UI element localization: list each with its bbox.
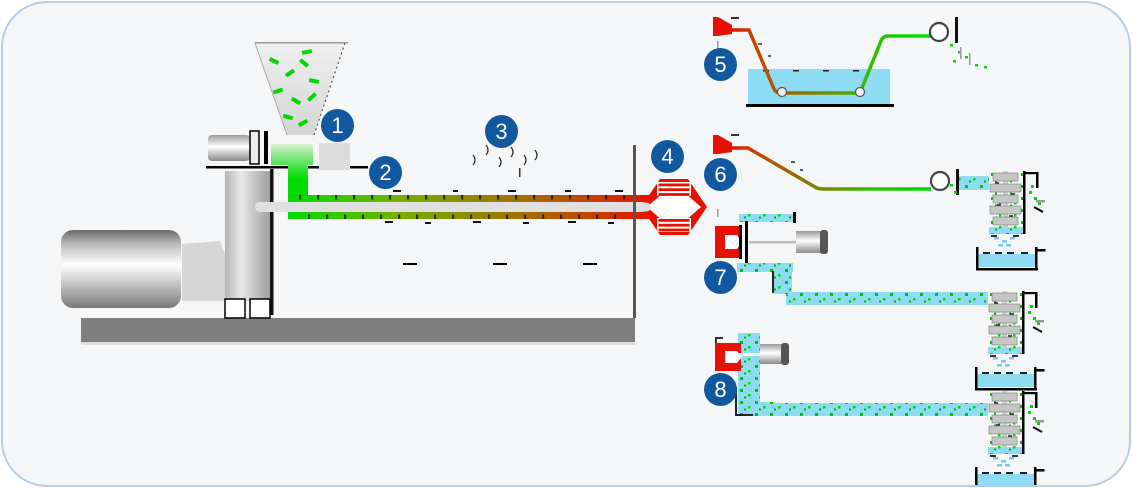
screw-barrel xyxy=(255,190,651,224)
die-face-cutter xyxy=(715,221,828,263)
machine-leg xyxy=(250,299,270,318)
step-number: 6 xyxy=(714,164,726,186)
step-number: 4 xyxy=(661,146,673,168)
extrusion-diagram xyxy=(3,3,1131,487)
step-number: 2 xyxy=(379,162,391,184)
step-badge-4: 4 xyxy=(651,140,684,173)
step-badge-3: 3 xyxy=(485,115,518,148)
die-head xyxy=(613,179,707,235)
breaker-plate xyxy=(659,184,690,187)
cutter-blade xyxy=(955,17,958,43)
cutter-hub xyxy=(760,344,784,364)
machine-base xyxy=(81,318,635,342)
guide-roller xyxy=(856,88,865,97)
screw-tip xyxy=(613,203,651,212)
step-number: 1 xyxy=(331,115,343,137)
extruder-machine xyxy=(61,42,707,345)
step-badge-8: 8 xyxy=(704,373,737,406)
cutter-hub xyxy=(796,231,822,253)
step-number: 8 xyxy=(714,379,726,401)
cut-pellets xyxy=(950,44,987,69)
extruder-screw xyxy=(255,202,647,212)
step-number: 3 xyxy=(495,121,507,143)
die-support xyxy=(633,145,636,318)
extruded-strand xyxy=(732,148,931,189)
feed-block xyxy=(319,143,350,170)
drive-motor xyxy=(61,230,181,308)
diagram-panel: 1 2 3 4 5 6 7 8 xyxy=(1,1,1131,487)
cutter-shaft xyxy=(749,241,796,244)
process-water-bath-strand xyxy=(713,17,987,107)
cutter-shaft xyxy=(738,353,760,356)
step-badge-5: 5 xyxy=(704,48,737,81)
thrust-bearing xyxy=(208,135,250,161)
guide-roller xyxy=(778,88,787,97)
strand-die xyxy=(713,135,718,154)
step-badge-6: 6 xyxy=(704,158,737,191)
step-badge-2: 2 xyxy=(369,156,402,189)
diagram-canvas: 1 2 3 4 5 6 7 8 xyxy=(0,0,1132,488)
step-badge-1: 1 xyxy=(321,109,354,142)
feed-throat xyxy=(271,144,313,197)
heat-wave-marks xyxy=(473,145,537,177)
puller-roller xyxy=(930,23,948,41)
step-badge-7: 7 xyxy=(704,261,737,294)
step-number: 5 xyxy=(714,54,726,76)
process-air-strand xyxy=(713,134,1046,271)
machine-leg xyxy=(225,299,245,318)
feed-section-housing xyxy=(225,171,271,301)
puller-roller xyxy=(931,172,949,190)
strand-die xyxy=(713,17,718,36)
step-number: 7 xyxy=(714,267,726,289)
